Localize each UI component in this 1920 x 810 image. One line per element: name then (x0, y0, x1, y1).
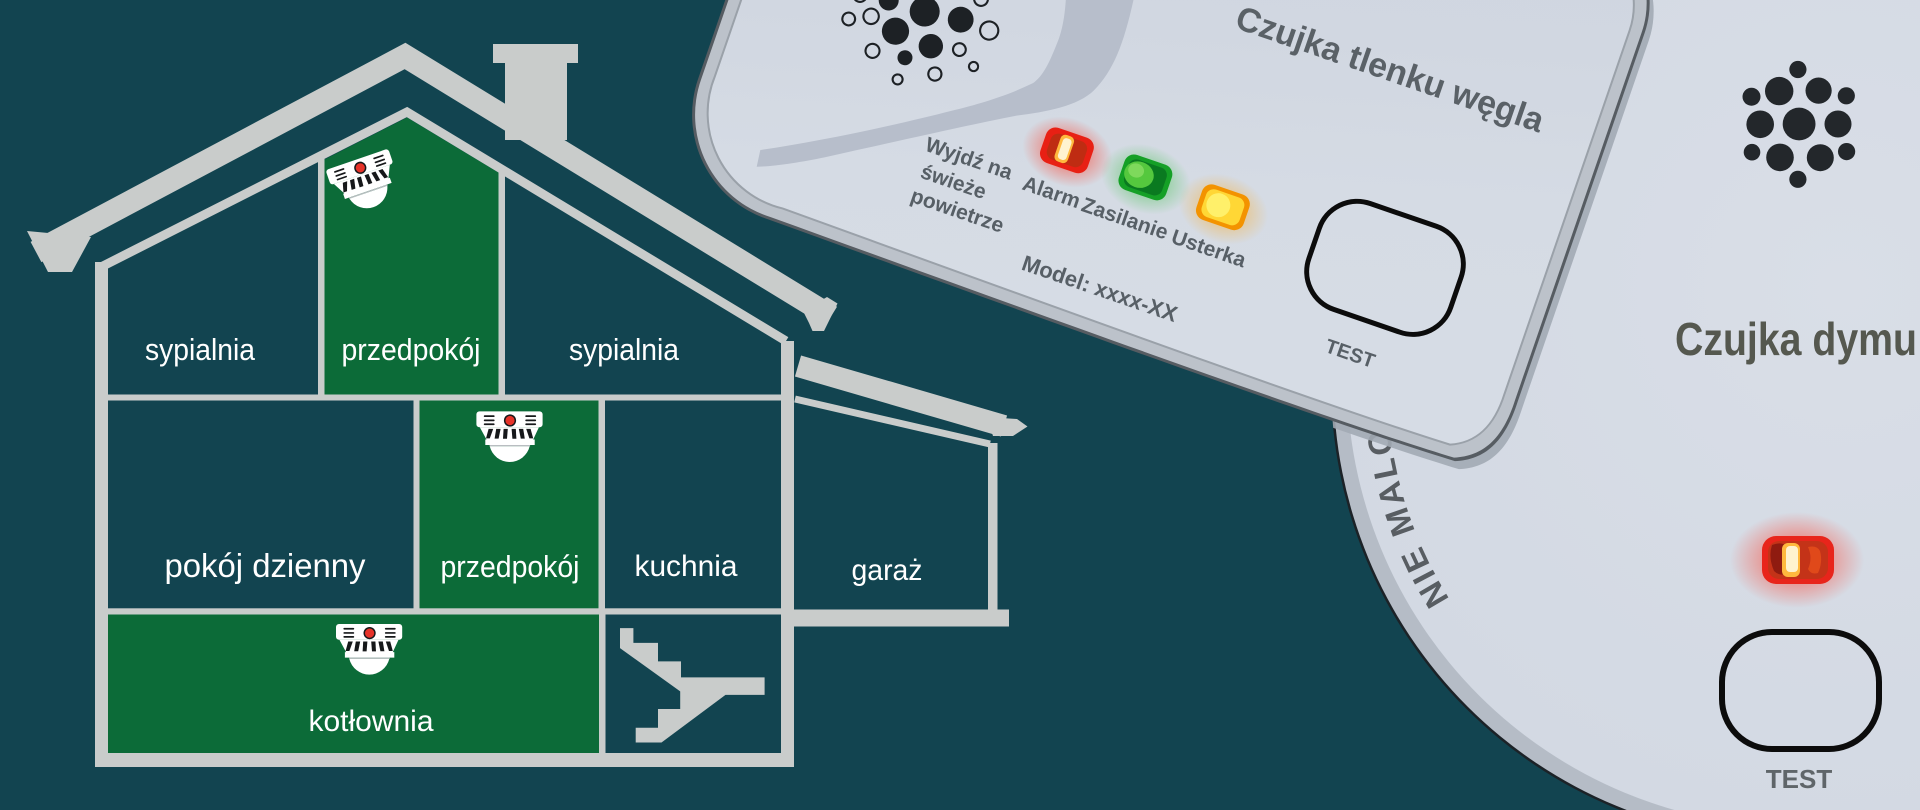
svg-text:TEST: TEST (1766, 764, 1833, 794)
svg-text:kotłownia: kotłownia (309, 705, 434, 738)
svg-text:przedpokój: przedpokój (342, 332, 481, 367)
svg-text:kuchnia: kuchnia (635, 550, 738, 583)
svg-text:przedpokój: przedpokój (441, 549, 580, 584)
svg-text:sypialnia: sypialnia (569, 332, 680, 367)
svg-text:sypialnia: sypialnia (145, 332, 256, 367)
svg-text:garaż: garaż (852, 554, 923, 587)
svg-text:Czujka dymu: Czujka dymu (1675, 313, 1917, 365)
svg-text:pokój dzienny: pokój dzienny (165, 547, 366, 584)
